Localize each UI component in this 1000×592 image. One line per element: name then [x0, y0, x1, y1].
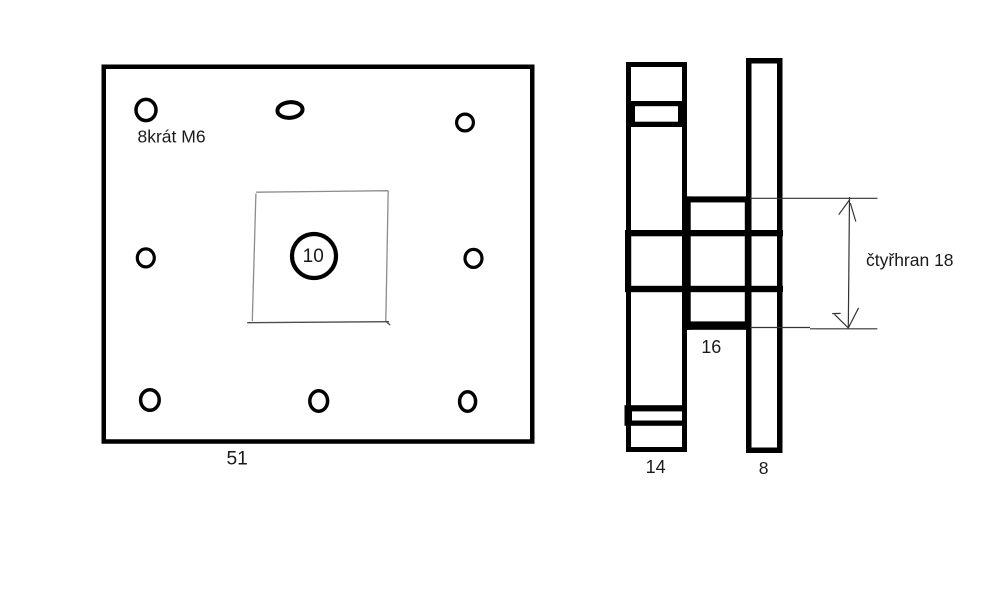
svg-text:8krát M6: 8krát M6: [138, 127, 206, 147]
svg-text:16: 16: [701, 337, 721, 357]
svg-text:čtyřhran 18: čtyřhran 18: [866, 250, 954, 270]
svg-text:8: 8: [759, 458, 769, 478]
svg-text:14: 14: [646, 457, 666, 477]
svg-text:10: 10: [303, 246, 324, 267]
svg-text:51: 51: [227, 448, 248, 469]
